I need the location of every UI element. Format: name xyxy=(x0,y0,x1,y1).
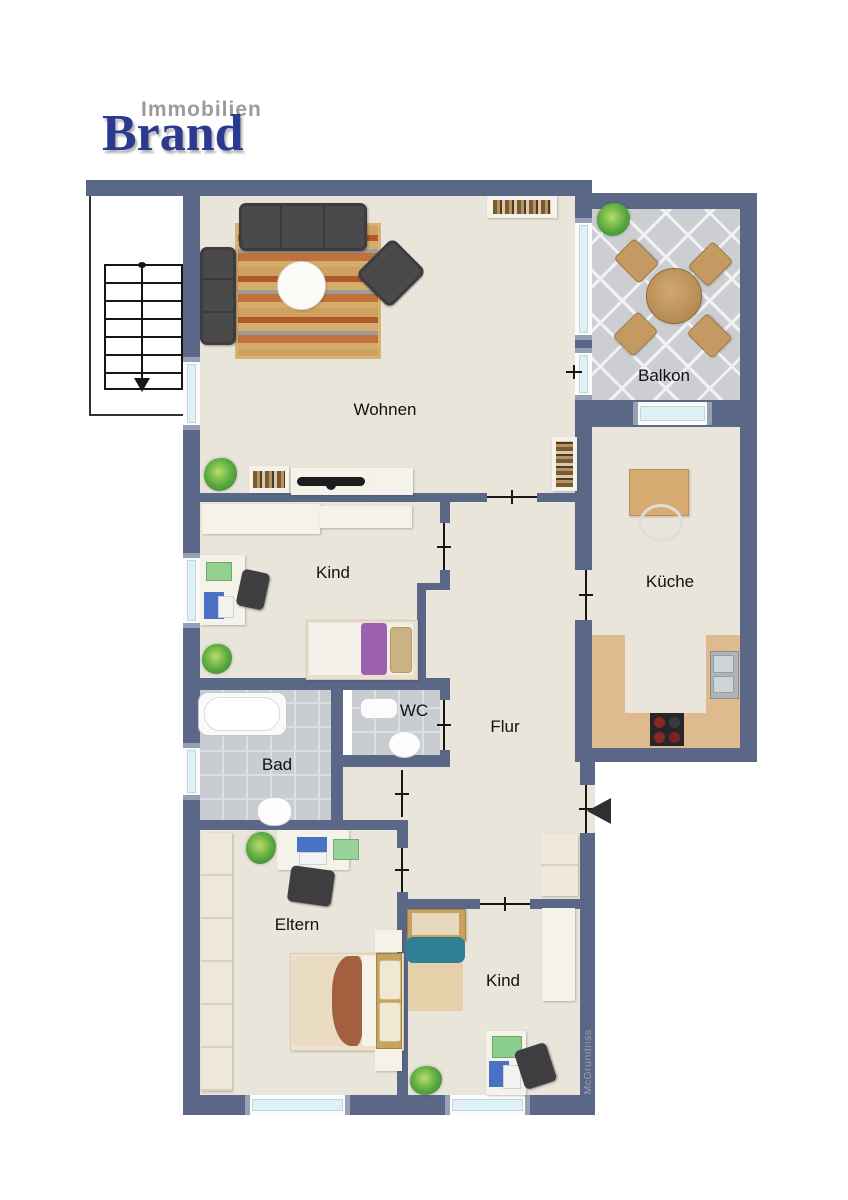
blanket xyxy=(361,623,387,675)
entrance-arrow-icon xyxy=(587,798,611,824)
wall xyxy=(183,430,200,553)
window-glass xyxy=(187,750,196,793)
room-label-flur: Flur xyxy=(490,717,519,737)
window xyxy=(183,553,200,628)
wall xyxy=(575,196,592,218)
wardrobe xyxy=(542,908,575,1001)
watermark: McGrundriss xyxy=(582,1007,594,1117)
cabinet xyxy=(371,468,413,495)
balcony-door xyxy=(575,218,592,340)
wardrobe xyxy=(201,833,232,1091)
window xyxy=(575,348,592,400)
wall xyxy=(331,678,343,823)
laptop xyxy=(297,837,327,852)
room-label-wohnen: Wohnen xyxy=(353,400,416,420)
logo-company-name: Brand xyxy=(102,104,244,163)
paper xyxy=(206,562,232,581)
window-marker xyxy=(566,371,582,373)
room-label-wc: WC xyxy=(400,701,428,721)
wall xyxy=(408,899,480,909)
window-glass xyxy=(452,1099,523,1111)
pillow xyxy=(379,960,401,1000)
door-marker xyxy=(401,770,403,817)
pillow xyxy=(390,627,412,673)
burner xyxy=(654,717,665,728)
wall xyxy=(417,590,426,678)
bed-head-inner xyxy=(412,913,459,935)
stair-direction-line xyxy=(141,264,143,384)
nightstand xyxy=(375,930,402,952)
blanket-fold xyxy=(332,956,364,1046)
floorplan-page: Immobilien Brand xyxy=(0,0,848,1200)
wall xyxy=(740,193,757,762)
wall xyxy=(343,755,450,767)
kitchen-chair xyxy=(639,504,683,542)
window-glass xyxy=(187,364,196,423)
coffee-table xyxy=(277,261,326,310)
room-label-bad: Bad xyxy=(262,755,292,775)
wardrobe xyxy=(541,834,578,896)
window-glass xyxy=(579,355,588,393)
patio-table xyxy=(646,268,702,324)
burner xyxy=(669,732,680,743)
wall xyxy=(440,690,450,700)
wall xyxy=(183,180,200,357)
room-label-eltern: Eltern xyxy=(275,915,319,935)
bathtub-inner xyxy=(204,697,280,731)
wall xyxy=(183,820,408,830)
wc-sink xyxy=(360,698,398,719)
shelf xyxy=(202,504,320,534)
room-label-kind1: Kind xyxy=(316,563,350,583)
stair-direction-dot xyxy=(138,262,146,268)
books xyxy=(493,200,551,214)
window-glass xyxy=(187,560,196,621)
door-marker xyxy=(487,496,537,498)
laptop-keyboard xyxy=(299,852,327,865)
books xyxy=(253,471,285,488)
window xyxy=(183,357,200,430)
wall xyxy=(575,340,592,348)
room-label-balkon: Balkon xyxy=(638,366,690,386)
paper xyxy=(333,839,359,860)
desk-chair xyxy=(287,865,336,907)
door-marker xyxy=(480,903,530,905)
books xyxy=(556,441,573,487)
bathroom-sink xyxy=(257,797,292,826)
toilet xyxy=(388,731,421,758)
tv-stand xyxy=(326,480,336,490)
window xyxy=(245,1095,350,1115)
window-glass xyxy=(252,1099,343,1111)
wall xyxy=(183,800,200,1115)
window-glass xyxy=(579,225,588,333)
door-marker xyxy=(443,700,445,750)
paper xyxy=(218,596,234,618)
mattress xyxy=(309,623,361,675)
nightstand xyxy=(375,1049,402,1071)
room-label-kueche: Küche xyxy=(646,572,694,592)
door-marker xyxy=(443,523,445,570)
wall xyxy=(575,748,757,762)
stair-treads xyxy=(104,264,183,390)
wall xyxy=(537,493,575,502)
window-glass xyxy=(640,406,705,421)
blanket xyxy=(408,963,463,1011)
shelf xyxy=(320,506,412,528)
door-marker xyxy=(585,570,587,620)
sofa xyxy=(239,203,367,251)
wall xyxy=(580,762,595,785)
pillow xyxy=(379,1002,401,1042)
room-label-kind2: Kind xyxy=(486,971,520,991)
sink-basin xyxy=(713,655,734,673)
wall xyxy=(86,180,592,196)
stair-direction-arrow xyxy=(134,378,150,392)
burner xyxy=(669,717,680,728)
wall xyxy=(417,583,450,590)
wall xyxy=(575,620,592,762)
window xyxy=(183,743,200,800)
window xyxy=(633,402,712,425)
sink-basin xyxy=(713,676,734,693)
wall xyxy=(440,502,450,523)
burner xyxy=(654,732,665,743)
pillow xyxy=(406,937,465,963)
window xyxy=(445,1095,530,1115)
sofa xyxy=(200,247,236,345)
wall xyxy=(575,427,592,570)
door-marker xyxy=(401,848,403,892)
wall xyxy=(397,830,408,848)
